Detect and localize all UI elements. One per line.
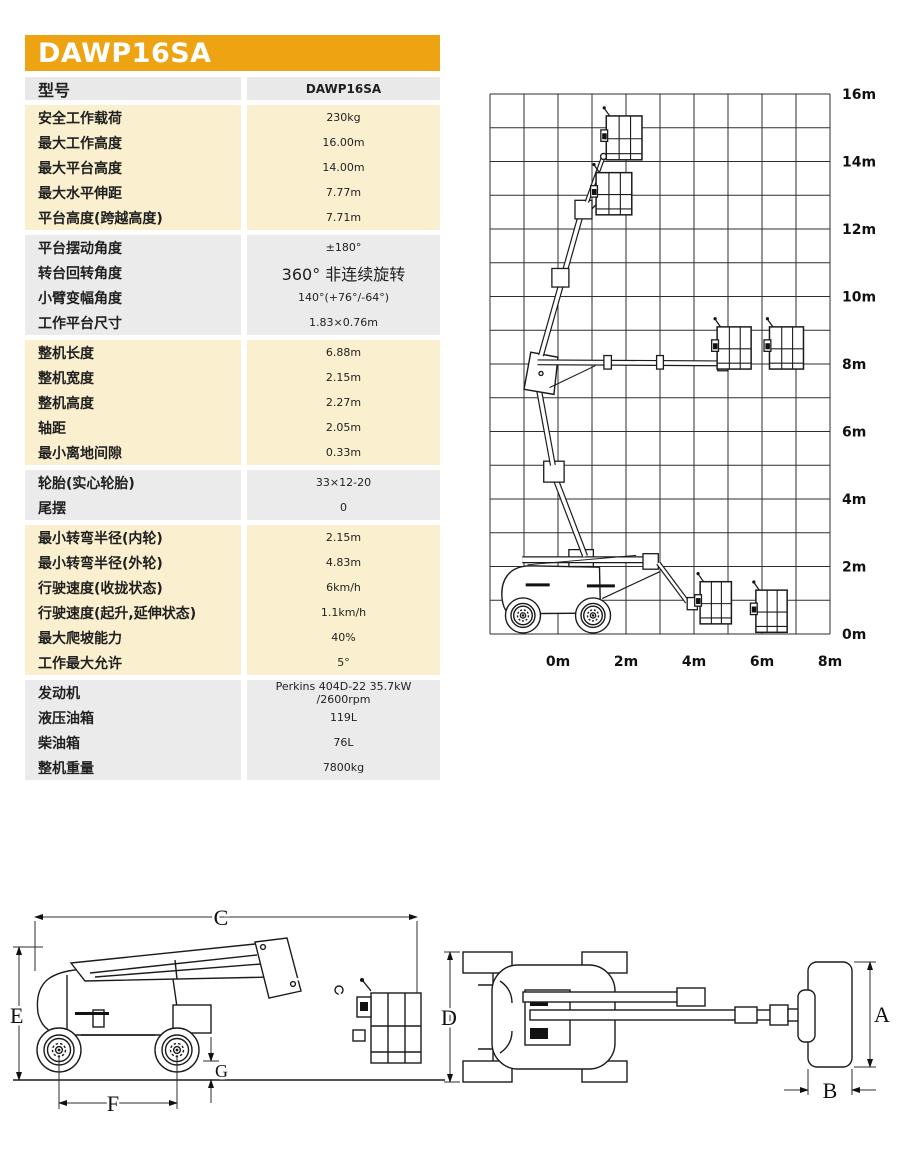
spec-label: 小臂变幅角度 xyxy=(25,285,241,310)
spec-row: 液压油箱119L xyxy=(25,705,440,730)
spec-row: 行驶速度(起升,延伸状态)1.1km/h xyxy=(25,600,440,625)
x-axis-tick: 6m xyxy=(750,654,774,670)
spec-row: 小臂变幅角度140°(+76°/-64°) xyxy=(25,285,440,310)
spec-label: 行驶速度(起升,延伸状态) xyxy=(25,600,241,625)
spec-group: 最小转弯半径(内轮)2.15m最小转弯半径(外轮)4.83m行驶速度(收拢状态)… xyxy=(25,525,440,675)
model-title: DAWP16SA xyxy=(25,38,212,69)
spec-row: 轴距2.05m xyxy=(25,415,440,440)
working-envelope-diagram: 16m14m12m10m8m6m4m2m0m0m2m4m6m8m xyxy=(470,88,900,688)
model-header-band: DAWP16SA xyxy=(25,35,440,71)
spec-row: 最小转弯半径(外轮)4.83m xyxy=(25,550,440,575)
spec-row: 最大水平伸距7.77m xyxy=(25,180,440,205)
spec-value: 40% xyxy=(247,625,440,650)
spec-row: 柴油箱76L xyxy=(25,730,440,755)
spec-label: 发动机 xyxy=(25,680,241,705)
spec-row: 尾摆0 xyxy=(25,495,440,520)
spec-row: 工作平台尺寸1.83×0.76m xyxy=(25,310,440,335)
spec-value: 0.33m xyxy=(247,440,440,465)
dim-label-A: A xyxy=(874,1002,890,1027)
spec-row: 整机长度6.88m xyxy=(25,340,440,365)
spec-label: 整机宽度 xyxy=(25,365,241,390)
spec-label: 最大工作高度 xyxy=(25,130,241,155)
x-axis-tick: 8m xyxy=(818,654,842,670)
spec-table: 型号 DAWP16SA 安全工作载荷230kg最大工作高度16.00m最大平台高… xyxy=(25,77,440,780)
x-axis-tick: 0m xyxy=(546,654,570,670)
x-axis-tick: 4m xyxy=(682,654,706,670)
spec-label: 安全工作载荷 xyxy=(25,105,241,130)
dim-B: B xyxy=(784,1069,876,1103)
spec-header-label: 型号 xyxy=(25,77,241,100)
spec-group: 平台摆动角度±180°转台回转角度360° 非连续旋转小臂变幅角度140°(+7… xyxy=(25,235,440,335)
spec-label: 轴距 xyxy=(25,415,241,440)
spec-value: 7800kg xyxy=(247,755,440,780)
y-axis-tick: 10m xyxy=(842,290,876,306)
y-axis-tick: 12m xyxy=(842,222,876,238)
spec-value: 1.1km/h xyxy=(247,600,440,625)
envelope-machine-art xyxy=(502,106,804,633)
y-axis-tick: 16m xyxy=(842,87,876,103)
dim-G: G xyxy=(203,1037,228,1103)
spec-row: 整机重量7800kg xyxy=(25,755,440,780)
spec-label: 行驶速度(收拢状态) xyxy=(25,575,241,600)
y-axis-tick: 2m xyxy=(842,560,866,576)
spec-label: 平台高度(跨越高度) xyxy=(25,205,241,230)
spec-row: 发动机Perkins 404D-22 35.7kW /2600rpm xyxy=(25,680,440,705)
spec-value: Perkins 404D-22 35.7kW /2600rpm xyxy=(247,680,440,705)
spec-label: 工作最大允许 xyxy=(25,650,241,675)
spec-value: 2.05m xyxy=(247,415,440,440)
dim-label-C: C xyxy=(214,905,229,930)
spec-group: 发动机Perkins 404D-22 35.7kW /2600rpm液压油箱11… xyxy=(25,680,440,780)
spec-group: 整机长度6.88m整机宽度2.15m整机高度2.27m轴距2.05m最小离地间隙… xyxy=(25,340,440,465)
spec-value: 6km/h xyxy=(247,575,440,600)
dim-label-F: F xyxy=(107,1091,119,1116)
side-view-drawing: C E F G xyxy=(5,885,450,1135)
spec-header-row: 型号 DAWP16SA xyxy=(25,77,440,100)
spec-row: 最大爬坡能力40% xyxy=(25,625,440,650)
spec-row: 最大工作高度16.00m xyxy=(25,130,440,155)
spec-group: 安全工作载荷230kg最大工作高度16.00m最大平台高度14.00m最大水平伸… xyxy=(25,105,440,230)
spec-label: 最大水平伸距 xyxy=(25,180,241,205)
dim-label-D: D xyxy=(441,1005,457,1030)
spec-value: 2.15m xyxy=(247,525,440,550)
spec-value: 2.15m xyxy=(247,365,440,390)
y-axis-tick: 8m xyxy=(842,357,866,373)
dim-label-E: E xyxy=(10,1003,23,1028)
spec-value: ±180° xyxy=(247,235,440,260)
spec-value: 7.77m xyxy=(247,180,440,205)
spec-label: 转台回转角度 xyxy=(25,260,241,285)
spec-label: 液压油箱 xyxy=(25,705,241,730)
spec-sheet-page: DAWP16SA 型号 DAWP16SA 安全工作载荷230kg最大工作高度16… xyxy=(0,0,900,1173)
top-view-drawing: D A B xyxy=(430,885,895,1135)
spec-header-value: DAWP16SA xyxy=(247,77,440,100)
y-axis-tick: 14m xyxy=(842,155,876,171)
spec-value: 119L xyxy=(247,705,440,730)
spec-groups: 安全工作载荷230kg最大工作高度16.00m最大平台高度14.00m最大水平伸… xyxy=(25,105,440,780)
top-view-machine xyxy=(463,952,852,1082)
spec-label: 整机高度 xyxy=(25,390,241,415)
spec-value: 5° xyxy=(247,650,440,675)
spec-value: 0 xyxy=(247,495,440,520)
spec-label: 尾摆 xyxy=(25,495,241,520)
spec-row: 行驶速度(收拢状态)6km/h xyxy=(25,575,440,600)
spec-value: 2.27m xyxy=(247,390,440,415)
spec-row: 平台摆动角度±180° xyxy=(25,235,440,260)
side-view-machine xyxy=(37,938,421,1072)
y-axis-tick: 6m xyxy=(842,425,866,441)
spec-label: 工作平台尺寸 xyxy=(25,310,241,335)
spec-group: 轮胎(实心轮胎)33×12-20尾摆0 xyxy=(25,470,440,520)
dim-D: D xyxy=(441,952,460,1082)
spec-row: 整机高度2.27m xyxy=(25,390,440,415)
spec-value: 4.83m xyxy=(247,550,440,575)
spec-value: 76L xyxy=(247,730,440,755)
spec-label: 最小转弯半径(外轮) xyxy=(25,550,241,575)
dim-label-G: G xyxy=(215,1061,228,1081)
spec-value: 360° 非连续旋转 xyxy=(247,260,440,285)
spec-row: 轮胎(实心轮胎)33×12-20 xyxy=(25,470,440,495)
spec-label: 柴油箱 xyxy=(25,730,241,755)
spec-label: 最小离地间隙 xyxy=(25,440,241,465)
spec-value: 6.88m xyxy=(247,340,440,365)
spec-row: 平台高度(跨越高度)7.71m xyxy=(25,205,440,230)
spec-value: 230kg xyxy=(247,105,440,130)
spec-row: 整机宽度2.15m xyxy=(25,365,440,390)
spec-value: 140°(+76°/-64°) xyxy=(247,285,440,310)
spec-label: 最小转弯半径(内轮) xyxy=(25,525,241,550)
spec-value: 16.00m xyxy=(247,130,440,155)
spec-row: 最小转弯半径(内轮)2.15m xyxy=(25,525,440,550)
spec-label: 最大平台高度 xyxy=(25,155,241,180)
spec-value: 7.71m xyxy=(247,205,440,230)
spec-label: 轮胎(实心轮胎) xyxy=(25,470,241,495)
spec-row: 安全工作载荷230kg xyxy=(25,105,440,130)
spec-value: 33×12-20 xyxy=(247,470,440,495)
spec-row: 工作最大允许5° xyxy=(25,650,440,675)
spec-label: 整机重量 xyxy=(25,755,241,780)
y-axis-tick: 4m xyxy=(842,492,866,508)
dim-label-B: B xyxy=(823,1078,838,1103)
spec-label: 整机长度 xyxy=(25,340,241,365)
spec-value: 14.00m xyxy=(247,155,440,180)
spec-value: 1.83×0.76m xyxy=(247,310,440,335)
dim-A: A xyxy=(854,962,890,1067)
spec-label: 最大爬坡能力 xyxy=(25,625,241,650)
y-axis-tick: 0m xyxy=(842,627,866,643)
spec-row: 最小离地间隙0.33m xyxy=(25,440,440,465)
x-axis-tick: 2m xyxy=(614,654,638,670)
spec-row: 转台回转角度360° 非连续旋转 xyxy=(25,260,440,285)
spec-row: 最大平台高度14.00m xyxy=(25,155,440,180)
spec-label: 平台摆动角度 xyxy=(25,235,241,260)
